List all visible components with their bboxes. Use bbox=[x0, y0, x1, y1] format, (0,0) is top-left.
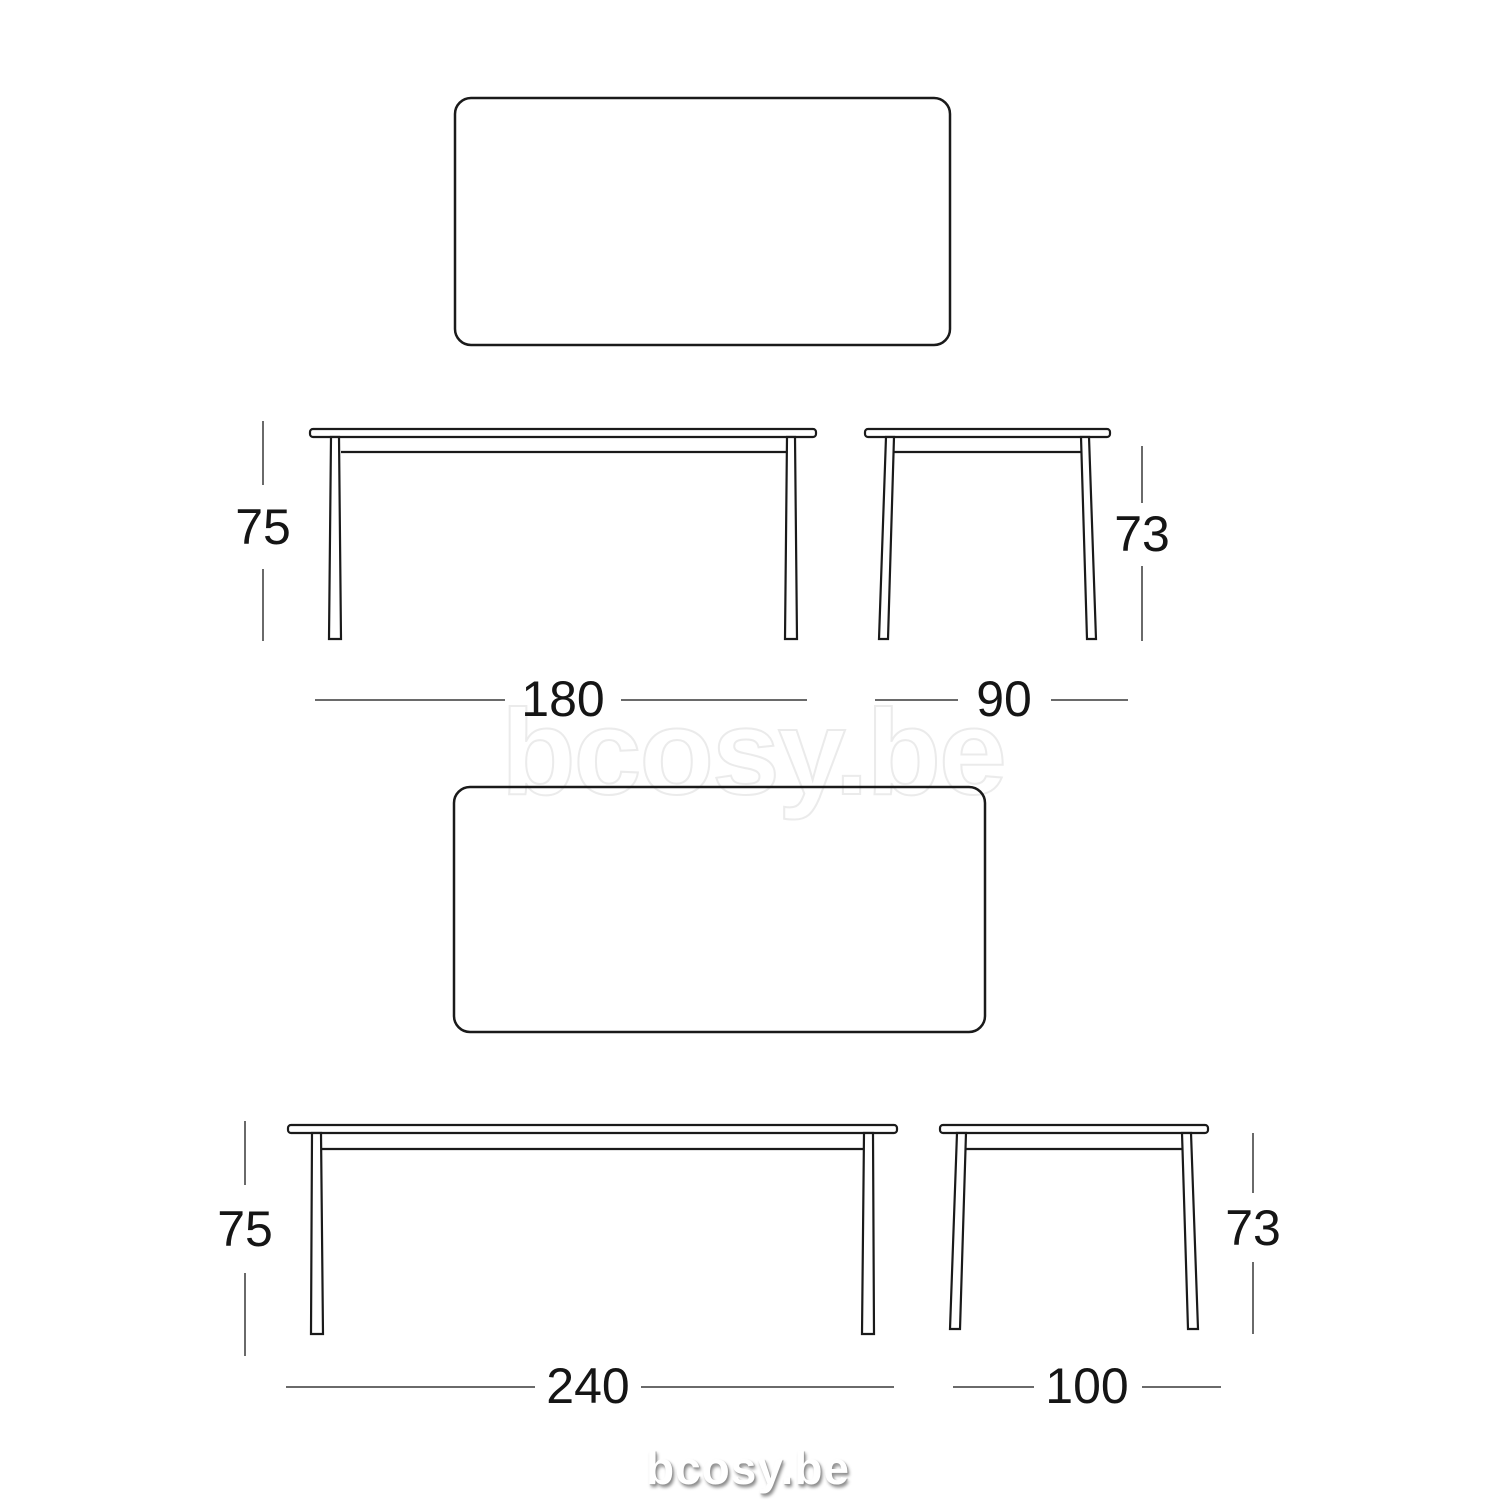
dim-label-height-small-front: 75 bbox=[235, 502, 291, 552]
small-table-top-outline bbox=[455, 98, 950, 345]
large-table-dimension-lines bbox=[245, 1121, 1253, 1387]
small-table-front-view bbox=[310, 429, 816, 639]
small-table-front-left-leg bbox=[329, 437, 341, 639]
dim-label-width-large: 240 bbox=[546, 1361, 629, 1411]
small-table-dimension-lines bbox=[263, 421, 1142, 700]
watermark-footer: bcosy.be bbox=[646, 1441, 850, 1495]
small-table-front-right-leg bbox=[785, 437, 797, 639]
technical-drawing bbox=[0, 0, 1500, 1500]
dim-label-depth-large: 100 bbox=[1045, 1361, 1128, 1411]
large-table-front-left-leg bbox=[311, 1133, 323, 1334]
small-table-side-left-leg bbox=[879, 437, 894, 639]
small-table-side-view bbox=[865, 429, 1110, 639]
small-table-top-view bbox=[455, 98, 950, 345]
dim-label-depth-small: 90 bbox=[976, 674, 1032, 724]
small-table-side-tabletop bbox=[865, 429, 1110, 437]
large-table-side-left-leg bbox=[950, 1133, 966, 1329]
small-table-front-tabletop bbox=[310, 429, 816, 437]
dim-label-height-large-side: 73 bbox=[1225, 1203, 1281, 1253]
dim-label-height-large-front: 75 bbox=[217, 1204, 273, 1254]
diagram-canvas: bcosy.be bbox=[0, 0, 1500, 1500]
dim-label-height-small-side: 73 bbox=[1114, 509, 1170, 559]
large-table-front-right-leg bbox=[862, 1133, 874, 1334]
large-table-side-view bbox=[940, 1125, 1208, 1329]
large-table-front-view bbox=[288, 1125, 897, 1334]
large-table-top-view bbox=[454, 787, 985, 1032]
large-table-side-tabletop bbox=[940, 1125, 1208, 1133]
dim-label-width-small: 180 bbox=[521, 674, 604, 724]
large-table-top-outline bbox=[454, 787, 985, 1032]
small-table-side-right-leg bbox=[1081, 437, 1096, 639]
large-table-front-tabletop bbox=[288, 1125, 897, 1133]
large-table-side-right-leg bbox=[1182, 1133, 1198, 1329]
